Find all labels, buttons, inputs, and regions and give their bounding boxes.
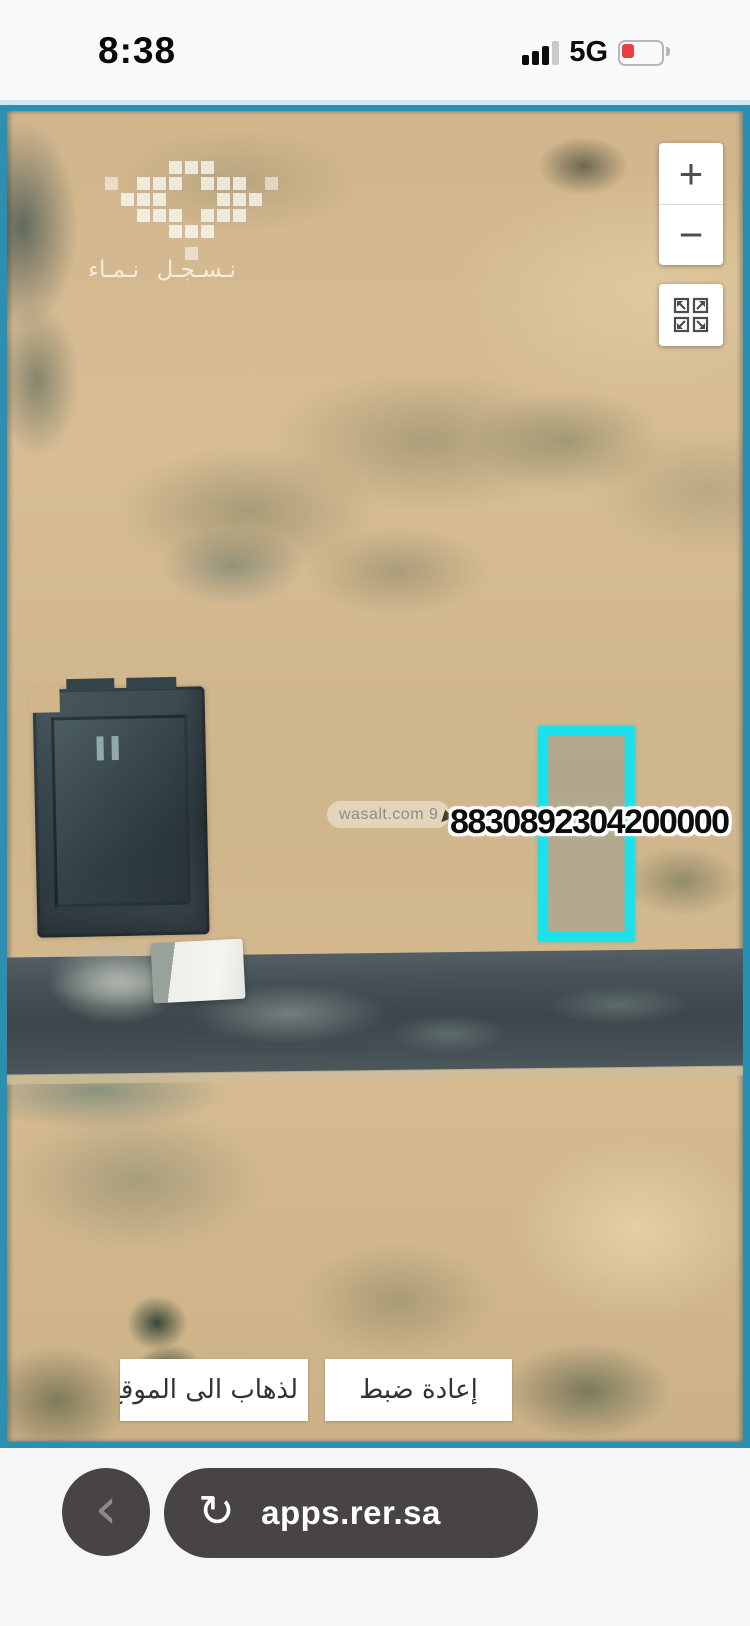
satellite-map[interactable]: نـسـجـل نـمـاء 8830892304200000 wasalt.c… [7,111,743,1442]
back-chevron-icon: ‹ [94,1479,117,1537]
rega-watermark-slogan: نـسـجـل نـمـاء [27,257,297,283]
building-compound [32,686,209,938]
wasalt-watermark: wasalt.com 9 [327,801,450,828]
building-tab [66,678,114,691]
back-button[interactable]: ‹ [62,1468,150,1556]
signal-strength-icon [522,41,559,65]
fullscreen-button[interactable] [659,284,723,346]
building-notch [29,686,60,713]
map-top-divider [0,100,750,105]
building-tab [126,677,176,690]
go-to-location-button[interactable]: لذهاب الى الموقع [120,1359,308,1421]
address-bar[interactable]: ↻ apps.rer.sa [164,1468,538,1558]
rega-logo-icon [105,161,118,174]
browser-bottom-bar: ‹ ↻ apps.rer.sa [0,1448,750,1626]
url-text: apps.rer.sa [164,1468,538,1558]
fullscreen-icon [673,297,709,333]
battery-level-fill [622,44,634,58]
building-vent [96,736,104,760]
battery-icon [618,40,664,66]
zoom-in-button[interactable]: + [659,143,723,204]
white-building [150,939,245,1004]
status-indicators: 5G [522,36,664,69]
reset-button[interactable]: إعادة ضبط [325,1359,512,1421]
zoom-out-button[interactable]: − [659,204,723,265]
phone-screen: 8:38 5G نـسـجـل نـمـاء [0,0,750,1626]
status-bar: 8:38 5G [0,0,750,100]
rega-watermark: نـسـجـل نـمـاء [27,151,307,281]
building-vent [111,736,119,760]
map-frame: نـسـجـل نـمـاء 8830892304200000 wasalt.c… [0,105,750,1448]
parcel-number-label: 8830892304200000 [450,803,729,842]
zoom-control: + − [659,143,723,265]
clock: 8:38 [98,30,176,72]
network-type-label: 5G [569,36,608,69]
